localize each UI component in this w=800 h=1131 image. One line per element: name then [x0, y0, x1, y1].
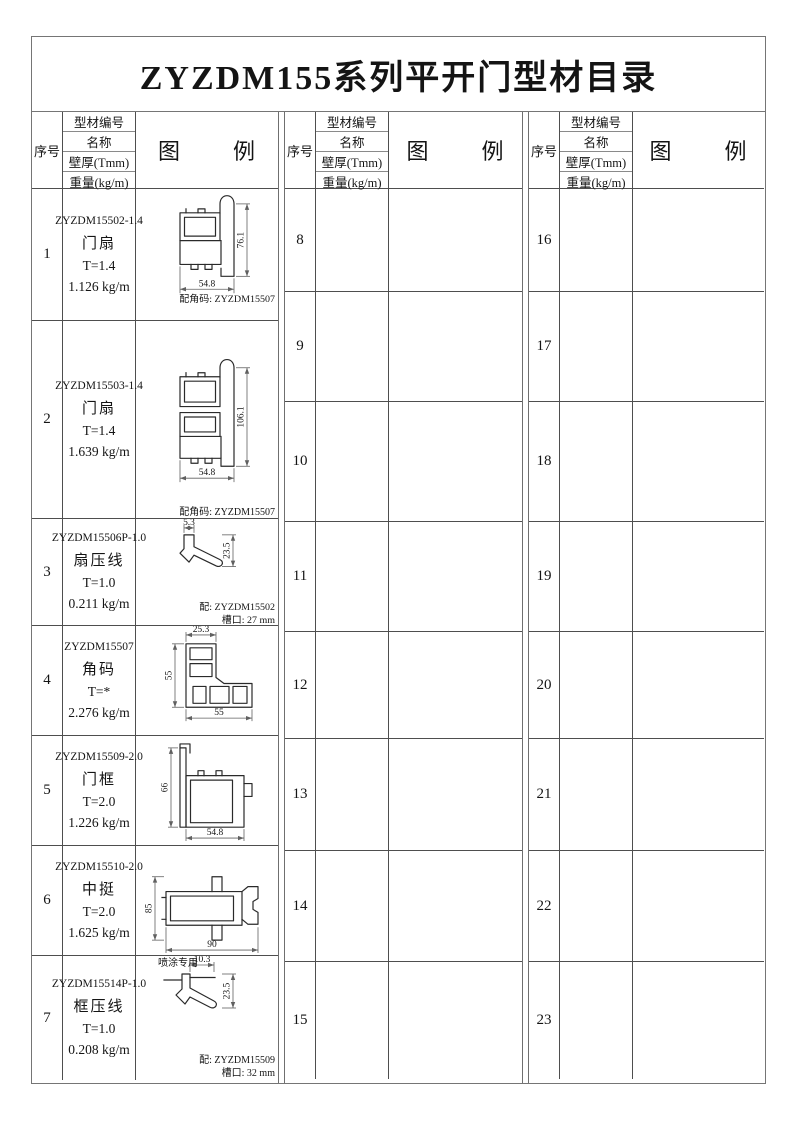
profile-code: ZYZDM15510-2.0	[55, 861, 143, 873]
row-profile-info	[560, 962, 633, 1079]
svg-text:76.1: 76.1	[236, 232, 246, 249]
row-legend-cell	[389, 189, 522, 291]
row-profile-info: ZYZDM15510-2.0中挺T=2.01.625 kg/m	[63, 846, 136, 955]
row-profile-info: ZYZDM15506P-1.0扇压线T=1.00.211 kg/m	[63, 519, 136, 625]
svg-text:配角码: ZYZDM15507: 配角码: ZYZDM15507	[179, 506, 275, 518]
row-profile-info	[560, 739, 633, 850]
row-legend-cell	[633, 851, 764, 961]
header-profile-code-label: 型材编号	[63, 112, 135, 132]
profile-thickness: T=1.4	[83, 423, 116, 439]
profile-drawing-frame-bead-profile: 10.323.5配: ZYZDM15509槽口: 32 mm	[136, 956, 278, 1080]
row-legend-cell	[633, 292, 764, 401]
svg-text:66: 66	[160, 783, 170, 793]
row-seq-number: 16	[529, 189, 560, 291]
row-seq-number: 15	[285, 962, 316, 1079]
group-separator	[522, 112, 529, 1083]
table-row: 10	[285, 402, 522, 522]
row-seq-number: 9	[285, 292, 316, 401]
row-seq-number: 17	[529, 292, 560, 401]
svg-text:55: 55	[214, 708, 224, 718]
profile-code: ZYZDM15506P-1.0	[52, 532, 146, 544]
table-row: 12	[285, 632, 522, 739]
profile-weight: 0.211 kg/m	[68, 596, 129, 612]
row-legend-cell	[389, 522, 522, 631]
row-legend-cell: 5.323.5配: ZYZDM15502槽口: 27 mm	[136, 519, 278, 625]
row-seq-number: 10	[285, 402, 316, 521]
row-legend-cell	[389, 632, 522, 738]
header-name-label: 名称	[560, 132, 632, 152]
row-profile-info: ZYZDM15514P-1.0框压线T=1.00.208 kg/m	[63, 956, 136, 1080]
svg-text:106.1: 106.1	[236, 406, 246, 428]
row-legend-cell: 10.323.5配: ZYZDM15509槽口: 32 mm	[136, 956, 278, 1080]
row-profile-info	[316, 739, 389, 850]
profile-code: ZYZDM15507	[64, 641, 134, 653]
table-row: 4ZYZDM15507角码T=*2.276 kg/m25.35555	[32, 626, 278, 736]
catalog-page: ZYZDM155系列平开门型材目录 序号 型材编号 名称 壁厚(Tmm) 重量(…	[0, 0, 800, 1131]
table-row: 13	[285, 739, 522, 851]
catalog-table: 序号 型材编号 名称 壁厚(Tmm) 重量(kg/m) 图 例 1ZYZDM15…	[32, 112, 765, 1083]
row-legend-cell	[633, 522, 764, 631]
table-row: 20	[529, 632, 764, 739]
row-legend-cell	[389, 962, 522, 1079]
row-seq-number: 18	[529, 402, 560, 521]
profile-code: ZYZDM15509-2.0	[55, 751, 143, 763]
row-seq-number: 22	[529, 851, 560, 961]
header-legend-label: 图 例	[389, 112, 522, 188]
header-wall-thickness-label: 壁厚(Tmm)	[316, 152, 388, 172]
profile-weight: 1.625 kg/m	[68, 925, 130, 941]
row-profile-info	[560, 522, 633, 631]
row-seq-number: 2	[32, 321, 63, 518]
svg-text:5.3: 5.3	[183, 519, 195, 528]
profile-thickness: T=2.0	[83, 794, 116, 810]
row-profile-info	[316, 402, 389, 521]
profile-thickness: T=*	[88, 684, 111, 700]
profile-drawing-door-sash-profile-large: 106.154.8配角码: ZYZDM15507	[136, 321, 278, 518]
row-seq-number: 19	[529, 522, 560, 631]
document-frame: ZYZDM155系列平开门型材目录 序号 型材编号 名称 壁厚(Tmm) 重量(…	[31, 36, 766, 1084]
group-2-rows: 89101112131415	[285, 189, 522, 1083]
header-wall-thickness-label: 壁厚(Tmm)	[63, 152, 135, 172]
row-seq-number: 14	[285, 851, 316, 961]
row-seq-number: 11	[285, 522, 316, 631]
table-row: 8	[285, 189, 522, 292]
row-seq-number: 1	[32, 189, 63, 320]
svg-text:54.8: 54.8	[199, 279, 216, 289]
profile-drawing-mullion-profile: 8590	[136, 846, 278, 955]
group-3-rows: 1617181920212223	[529, 189, 764, 1083]
row-legend-cell	[633, 739, 764, 850]
group-1-header: 序号 型材编号 名称 壁厚(Tmm) 重量(kg/m) 图 例	[32, 112, 278, 189]
header-info-labels: 型材编号 名称 壁厚(Tmm) 重量(kg/m)	[316, 112, 389, 188]
svg-text:54.8: 54.8	[199, 468, 216, 478]
table-row: 19	[529, 522, 764, 632]
profile-code: ZYZDM15503-1.4	[55, 380, 143, 392]
profile-code: ZYZDM15502-1.4	[55, 215, 143, 227]
profile-drawing-door-sash-profile-small: 76.154.8配角码: ZYZDM15507	[136, 189, 278, 320]
table-row: 9	[285, 292, 522, 402]
svg-text:配: ZYZDM15509: 配: ZYZDM15509	[199, 1054, 275, 1066]
table-row: 7ZYZDM15514P-1.0框压线T=1.00.208 kg/m10.323…	[32, 956, 278, 1080]
table-row: 22	[529, 851, 764, 962]
row-profile-info	[560, 402, 633, 521]
profile-name: 扇压线	[73, 549, 124, 570]
row-legend-cell	[389, 292, 522, 401]
row-legend-cell	[633, 402, 764, 521]
row-profile-info	[560, 632, 633, 738]
profile-thickness: T=1.0	[83, 575, 116, 591]
row-profile-info	[316, 851, 389, 961]
profile-drawing-corner-key-profile: 25.35555	[136, 626, 278, 735]
table-row: 5ZYZDM15509-2.0门框T=2.01.226 kg/m6654.8	[32, 736, 278, 846]
table-row: 1ZYZDM15502-1.4门扇T=1.41.126 kg/m76.154.8…	[32, 189, 278, 321]
row-seq-number: 20	[529, 632, 560, 738]
row-profile-info	[316, 522, 389, 631]
profile-name: 中挺	[82, 878, 116, 899]
table-row: 3ZYZDM15506P-1.0扇压线T=1.00.211 kg/m5.323.…	[32, 519, 278, 626]
row-legend-cell	[389, 851, 522, 961]
row-seq-number: 23	[529, 962, 560, 1079]
svg-text:23.5: 23.5	[222, 542, 232, 559]
table-row: 18	[529, 402, 764, 522]
svg-text:55: 55	[164, 671, 174, 681]
group-separator	[278, 112, 285, 1083]
svg-text:槽口: 32 mm: 槽口: 32 mm	[222, 1066, 276, 1079]
header-seq-label: 序号	[32, 112, 63, 188]
row-legend-cell: 76.154.8配角码: ZYZDM15507	[136, 189, 278, 320]
row-seq-number: 21	[529, 739, 560, 850]
header-seq-label: 序号	[529, 112, 560, 188]
svg-text:85: 85	[144, 903, 154, 913]
profile-thickness: T=1.4	[83, 258, 116, 274]
group-3-header: 序号 型材编号 名称 壁厚(Tmm) 重量(kg/m) 图 例	[529, 112, 764, 189]
header-legend-label: 图 例	[633, 112, 764, 188]
row-legend-cell	[633, 962, 764, 1079]
svg-text:90: 90	[207, 940, 217, 950]
row-profile-info	[316, 292, 389, 401]
header-profile-code-label: 型材编号	[560, 112, 632, 132]
profile-weight: 1.126 kg/m	[68, 279, 130, 295]
profile-weight: 1.639 kg/m	[68, 444, 130, 460]
profile-weight: 1.226 kg/m	[68, 815, 130, 831]
row-profile-info	[560, 851, 633, 961]
group-1-rows: 1ZYZDM15502-1.4门扇T=1.41.126 kg/m76.154.8…	[32, 189, 278, 1083]
row-profile-info: ZYZDM15509-2.0门框T=2.01.226 kg/m	[63, 736, 136, 845]
table-row: 15	[285, 962, 522, 1079]
column-group-3: 序号 型材编号 名称 壁厚(Tmm) 重量(kg/m) 图 例 16171819…	[529, 112, 764, 1083]
profile-name: 框压线	[73, 995, 124, 1016]
row-profile-info: ZYZDM15502-1.4门扇T=1.41.126 kg/m	[63, 189, 136, 320]
profile-name: 门扇	[82, 397, 116, 418]
row-seq-number: 8	[285, 189, 316, 291]
row-profile-info	[316, 632, 389, 738]
header-legend-label: 图 例	[136, 112, 278, 188]
row-profile-info	[560, 292, 633, 401]
header-profile-code-label: 型材编号	[316, 112, 388, 132]
header-info-labels: 型材编号 名称 壁厚(Tmm) 重量(kg/m)	[63, 112, 136, 188]
row-legend-cell: 106.154.8配角码: ZYZDM15507	[136, 321, 278, 518]
svg-text:23.5: 23.5	[223, 982, 233, 999]
row-profile-info	[316, 189, 389, 291]
svg-text:25.3: 25.3	[193, 626, 210, 635]
profile-drawing-sash-bead-profile: 5.323.5配: ZYZDM15502槽口: 27 mm	[136, 519, 278, 625]
page-title: ZYZDM155系列平开门型材目录	[140, 50, 658, 99]
profile-code: ZYZDM15514P-1.0	[52, 978, 146, 990]
table-row: 11	[285, 522, 522, 632]
profile-name: 角码	[82, 658, 116, 679]
table-row: 14	[285, 851, 522, 962]
row-profile-info: ZYZDM15507角码T=*2.276 kg/m	[63, 626, 136, 735]
row-legend-cell: 6654.8	[136, 736, 278, 845]
row-legend-cell	[389, 402, 522, 521]
row-seq-number: 13	[285, 739, 316, 850]
row-legend-cell	[633, 189, 764, 291]
profile-thickness: T=2.0	[83, 904, 116, 920]
profile-weight: 2.276 kg/m	[68, 705, 130, 721]
row-legend-cell: 8590喷涂专用	[136, 846, 278, 955]
row-profile-info	[560, 189, 633, 291]
svg-text:槽口: 27 mm: 槽口: 27 mm	[222, 613, 276, 625]
row-legend-cell: 25.35555	[136, 626, 278, 735]
row-profile-info: ZYZDM15503-1.4门扇T=1.41.639 kg/m	[63, 321, 136, 518]
header-wall-thickness-label: 壁厚(Tmm)	[560, 152, 632, 172]
spray-coating-note: 喷涂专用	[158, 954, 198, 969]
profile-drawing-door-frame-profile: 6654.8	[136, 736, 278, 845]
row-seq-number: 7	[32, 956, 63, 1080]
table-row: 23	[529, 962, 764, 1079]
row-legend-cell	[389, 739, 522, 850]
header-seq-label: 序号	[285, 112, 316, 188]
profile-thickness: T=1.0	[83, 1021, 116, 1037]
table-row: 17	[529, 292, 764, 402]
row-seq-number: 12	[285, 632, 316, 738]
table-row: 16	[529, 189, 764, 292]
table-row: 2ZYZDM15503-1.4门扇T=1.41.639 kg/m106.154.…	[32, 321, 278, 519]
header-name-label: 名称	[316, 132, 388, 152]
header-info-labels: 型材编号 名称 壁厚(Tmm) 重量(kg/m)	[560, 112, 633, 188]
svg-text:配: ZYZDM15502: 配: ZYZDM15502	[199, 601, 275, 613]
row-seq-number: 4	[32, 626, 63, 735]
profile-name: 门扇	[82, 232, 116, 253]
profile-name: 门框	[82, 768, 116, 789]
title-bar: ZYZDM155系列平开门型材目录	[32, 37, 765, 112]
header-name-label: 名称	[63, 132, 135, 152]
column-group-1: 序号 型材编号 名称 壁厚(Tmm) 重量(kg/m) 图 例 1ZYZDM15…	[32, 112, 278, 1083]
row-profile-info	[316, 962, 389, 1079]
svg-text:54.8: 54.8	[207, 828, 224, 838]
group-2-header: 序号 型材编号 名称 壁厚(Tmm) 重量(kg/m) 图 例	[285, 112, 522, 189]
table-row: 21	[529, 739, 764, 851]
column-group-2: 序号 型材编号 名称 壁厚(Tmm) 重量(kg/m) 图 例 89101112…	[285, 112, 522, 1083]
svg-text:配角码: ZYZDM15507: 配角码: ZYZDM15507	[179, 293, 275, 305]
row-legend-cell	[633, 632, 764, 738]
profile-weight: 0.208 kg/m	[68, 1042, 130, 1058]
table-row: 6ZYZDM15510-2.0中挺T=2.01.625 kg/m8590喷涂专用	[32, 846, 278, 956]
